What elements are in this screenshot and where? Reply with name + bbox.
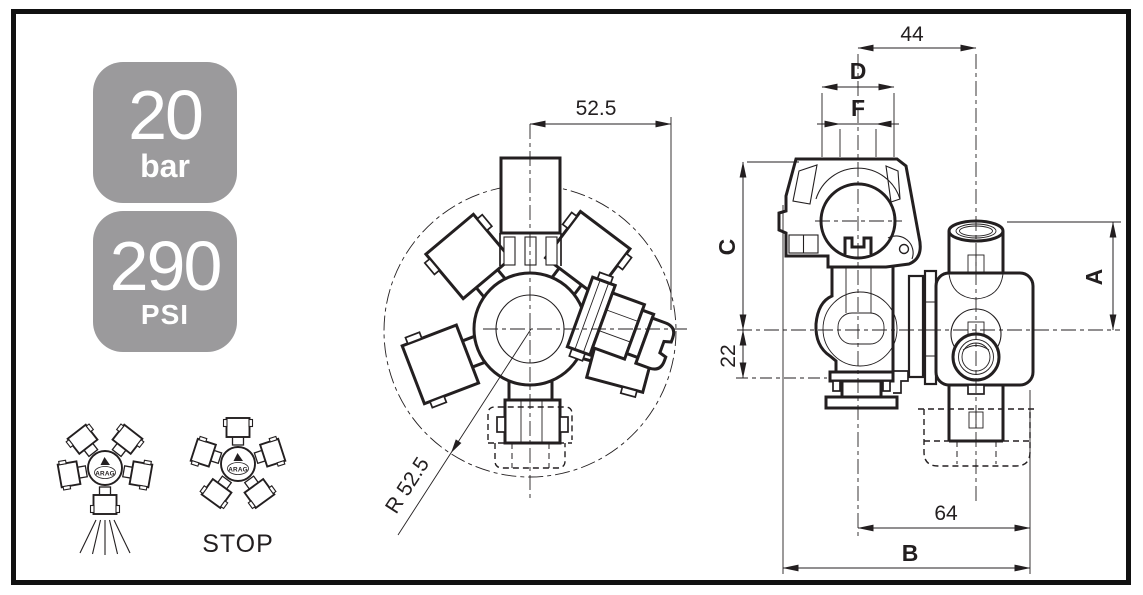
icon-nozzle-cap [57,457,89,490]
dimension-44: 44 [858,23,976,48]
arag-brand-label: ARAG [228,467,248,474]
radius-arrowhead [451,439,461,453]
icon-nozzle-cap [224,418,253,445]
dim-label-r52-5: R 52.5 [381,453,434,517]
arag-brand-label: ARAG [95,471,115,478]
pipe-clamp [779,159,920,267]
side-view-drawing: 44 D F C [714,23,1121,574]
icon-hub [221,447,255,481]
dim-label-c: C [714,239,740,256]
catalog-drawing-panel: 20 bar 290 PSI [0,0,1143,595]
icon-hub [88,451,122,485]
dim-label-44: 44 [900,23,924,46]
dim-label-a: A [1081,269,1107,286]
icon-nozzle-cap [121,457,153,490]
connection-flange [909,271,936,384]
icon-nozzle-cap [252,436,287,472]
front-view-drawing: 52.5 R 52.5 [381,97,688,535]
technical-drawing-canvas: 52.5 R 52.5 [0,0,1143,595]
spray-lines [80,520,130,555]
dim-label-22: 22 [717,344,740,367]
spray-position-icon: ARAG [57,423,153,555]
stop-label: STOP [202,530,274,558]
dim-label-b: B [902,540,919,566]
top-nozzle-cap [500,158,561,266]
bayonet-flange [826,372,897,408]
dim-label-f: F [851,95,865,121]
bottom-outlet-port [497,380,568,443]
phantom-nozzle [918,409,1037,466]
dim-label-d: D [850,58,867,84]
dimension-22: 22 [717,330,827,378]
stop-position-icon: ARAG STOP [190,418,286,558]
icon-nozzle-cap [190,436,225,472]
fitting-body [936,221,1033,441]
icon-nozzle-cap [91,487,120,514]
dim-label-64: 64 [934,502,958,525]
dim-label-52-5: 52.5 [576,97,617,120]
